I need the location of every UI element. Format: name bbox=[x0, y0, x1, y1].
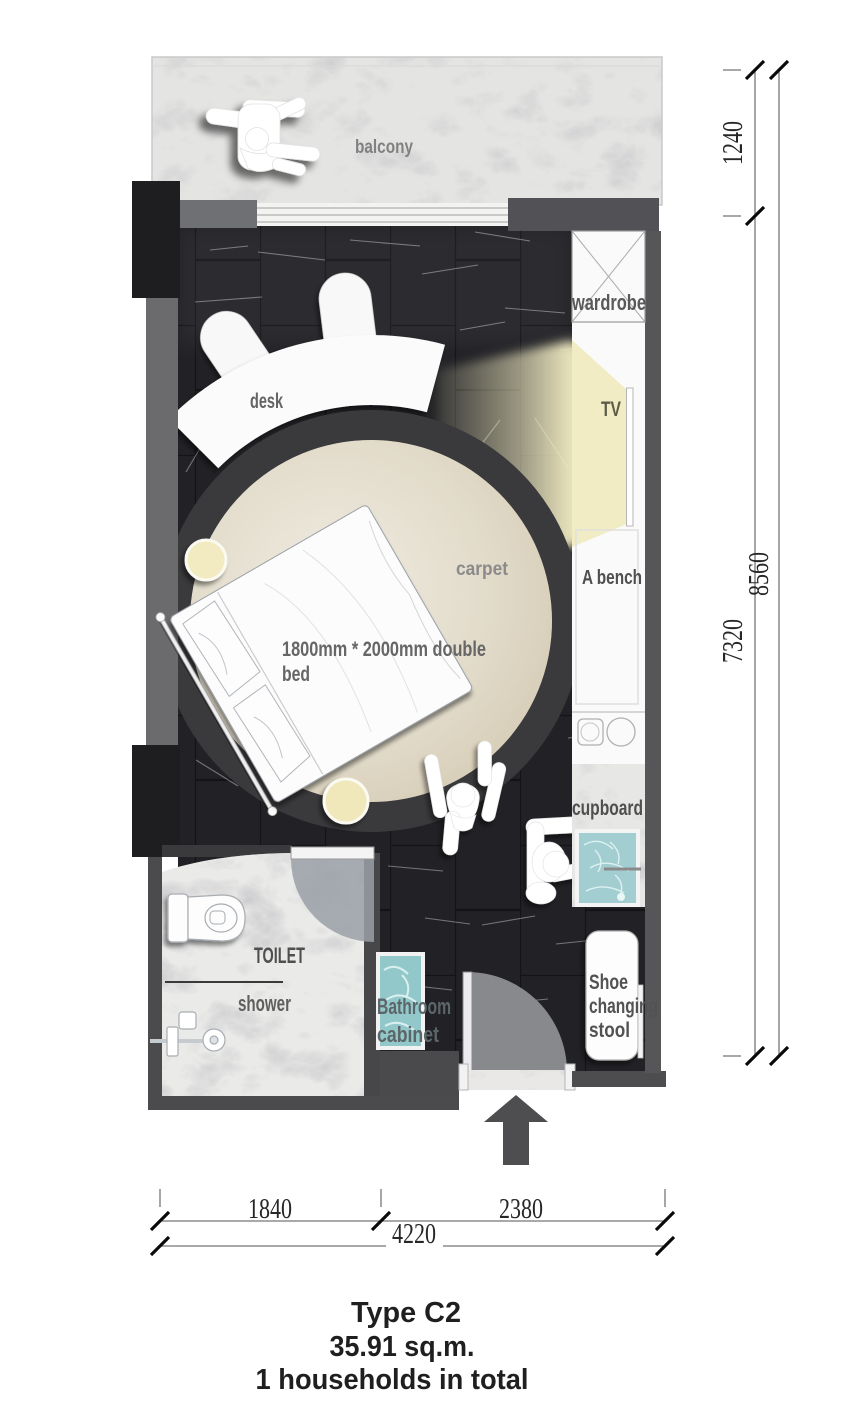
svg-text:stool: stool bbox=[589, 1019, 630, 1042]
svg-text:Bathroom: Bathroom bbox=[377, 994, 451, 1019]
svg-text:TV: TV bbox=[601, 398, 621, 421]
svg-text:bed: bed bbox=[282, 663, 310, 686]
svg-text:wardrobe: wardrobe bbox=[571, 290, 646, 315]
svg-text:changing: changing bbox=[589, 995, 658, 1018]
svg-text:1 households in total: 1 households in total bbox=[256, 1364, 529, 1396]
svg-text:4220: 4220 bbox=[392, 1219, 436, 1250]
svg-text:A bench: A bench bbox=[582, 567, 642, 589]
svg-text:1840: 1840 bbox=[248, 1194, 292, 1225]
svg-text:cupboard: cupboard bbox=[572, 797, 643, 820]
svg-text:7320: 7320 bbox=[718, 619, 749, 663]
svg-text:35.91 sq.m.: 35.91 sq.m. bbox=[330, 1331, 475, 1363]
svg-text:cabinet: cabinet bbox=[377, 1022, 440, 1047]
svg-text:8560: 8560 bbox=[744, 552, 775, 596]
svg-text:TOILET: TOILET bbox=[254, 943, 305, 968]
svg-text:2380: 2380 bbox=[499, 1194, 543, 1225]
svg-text:desk: desk bbox=[250, 390, 283, 413]
svg-text:1800mm * 2000mm double: 1800mm * 2000mm double bbox=[282, 638, 486, 661]
svg-text:Type C2: Type C2 bbox=[351, 1297, 461, 1329]
svg-text:carpet: carpet bbox=[456, 559, 509, 580]
svg-text:Shoe: Shoe bbox=[589, 971, 628, 994]
svg-text:shower: shower bbox=[238, 991, 291, 1016]
svg-text:1240: 1240 bbox=[718, 121, 749, 165]
svg-text:balcony: balcony bbox=[355, 137, 413, 158]
